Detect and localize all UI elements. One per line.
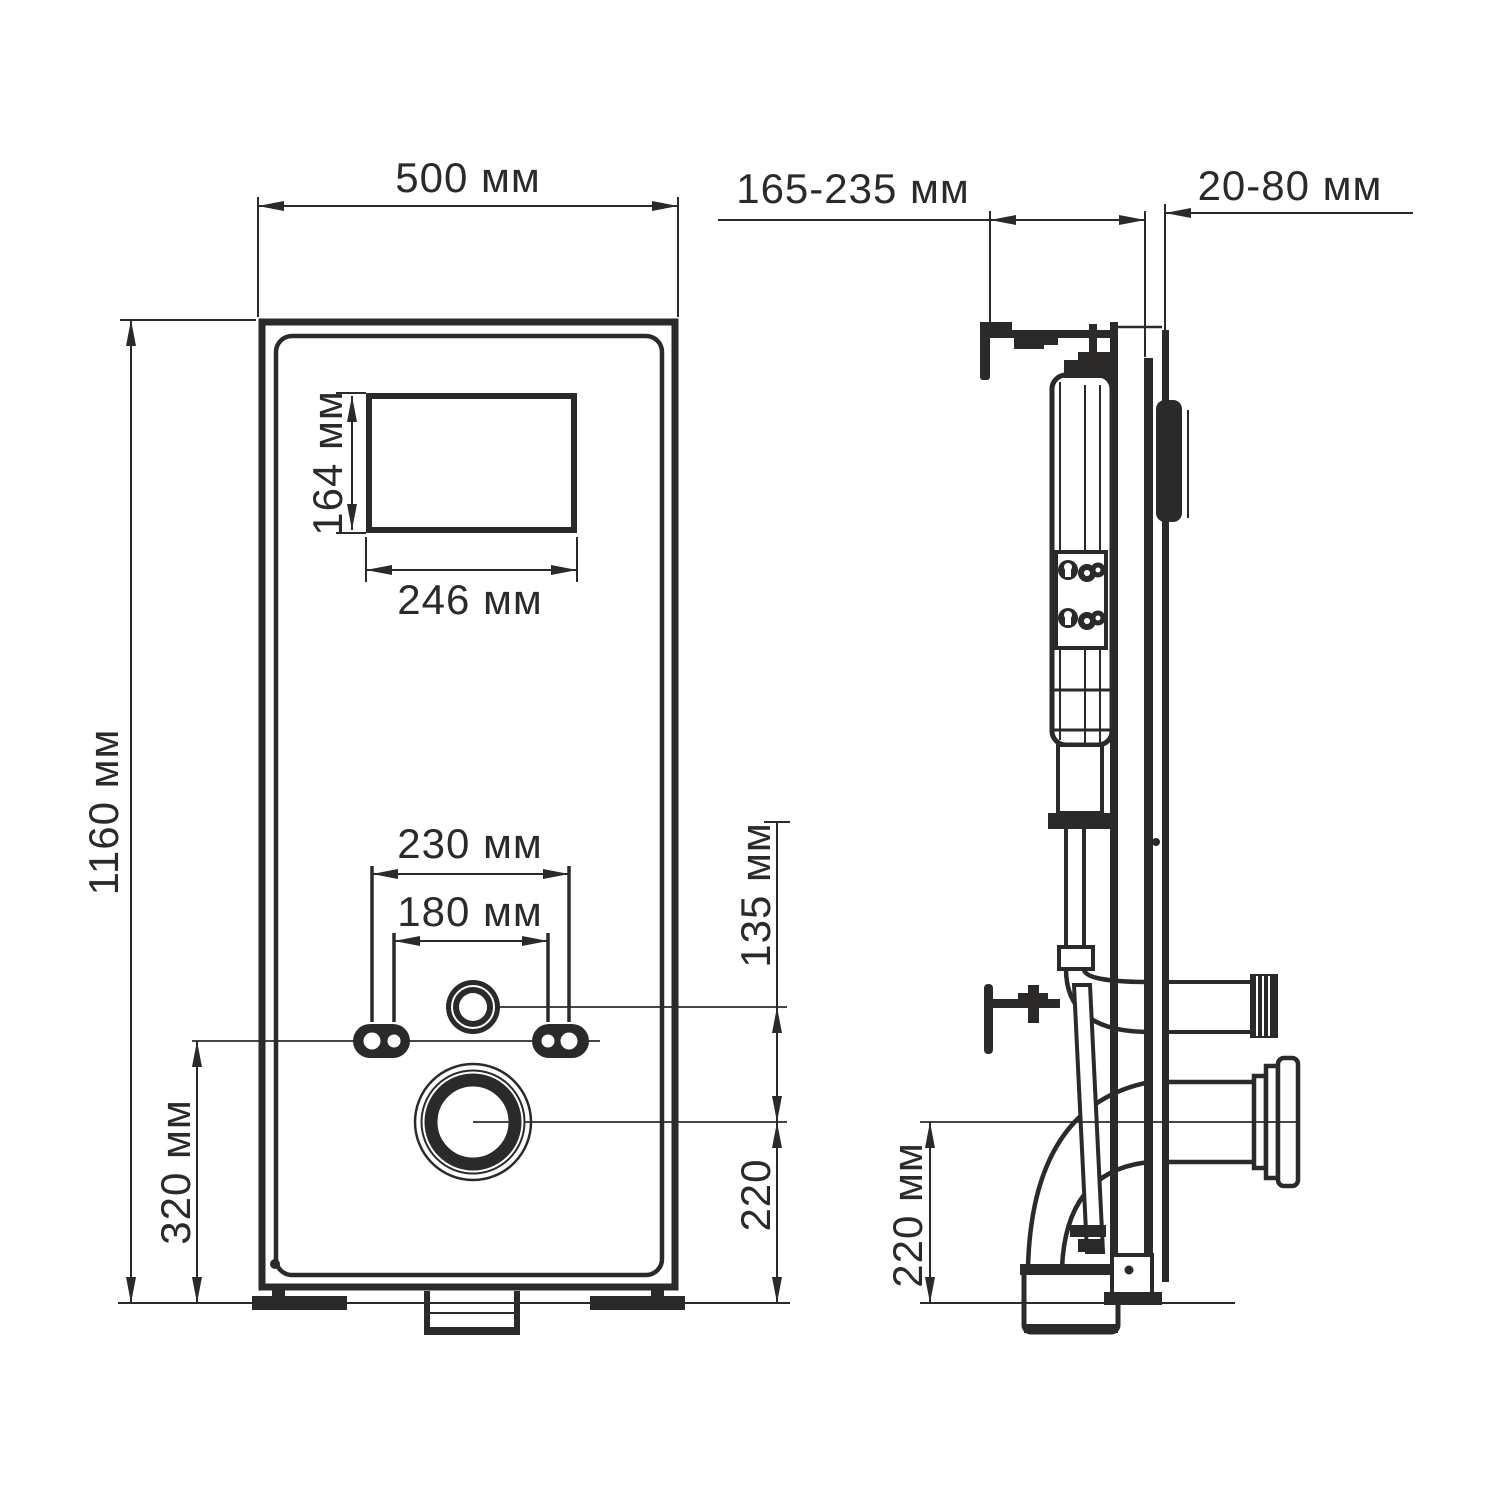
dim-window-height: 164 мм	[304, 390, 351, 536]
inspection-window	[369, 396, 574, 530]
dim-front-height: 1160 мм	[80, 729, 127, 896]
dim-front-drain-center: 220	[732, 1158, 779, 1231]
frame-foot	[1104, 1255, 1162, 1305]
dim-mount-inner: 180 мм	[397, 888, 543, 935]
dim-side-drain-center: 220 мм	[884, 1142, 931, 1288]
dim-front-width: 500 мм	[395, 154, 541, 201]
dim-flush-to-drain: 135 мм	[732, 822, 779, 968]
frame-rails	[1110, 322, 1182, 1296]
flush-plate-edge	[1156, 400, 1182, 522]
dim-side-wall-clearance: 20-80 мм	[1198, 162, 1383, 209]
bolt-slot-right	[532, 1024, 589, 1058]
bowl-flush-connector	[1169, 974, 1278, 1038]
flush-outlet-hole	[446, 980, 500, 1034]
dim-window-width: 246 мм	[397, 576, 543, 623]
keyhole-plate	[1056, 552, 1106, 648]
inlet-valve-bracket	[984, 984, 1060, 1054]
flush-pipe	[1048, 745, 1150, 1032]
cistern	[1052, 324, 1112, 745]
dim-side-depth: 165-235 мм	[736, 165, 970, 212]
dim-mount-outer: 230 мм	[397, 820, 543, 867]
bolt-slot-left	[353, 1024, 410, 1058]
rail-screw	[1152, 838, 1160, 846]
technical-drawing: 500 мм 1160 мм 164 мм 246 мм 230 мм 180 …	[0, 0, 1500, 1500]
panel-pin	[270, 1259, 280, 1269]
side-view	[980, 322, 1298, 1333]
drawing-sheet: 500 мм 1160 мм 164 мм 246 мм 230 мм 180 …	[0, 0, 1500, 1500]
dim-mount-height: 320 мм	[152, 1099, 199, 1245]
panel-feet	[252, 1287, 685, 1335]
